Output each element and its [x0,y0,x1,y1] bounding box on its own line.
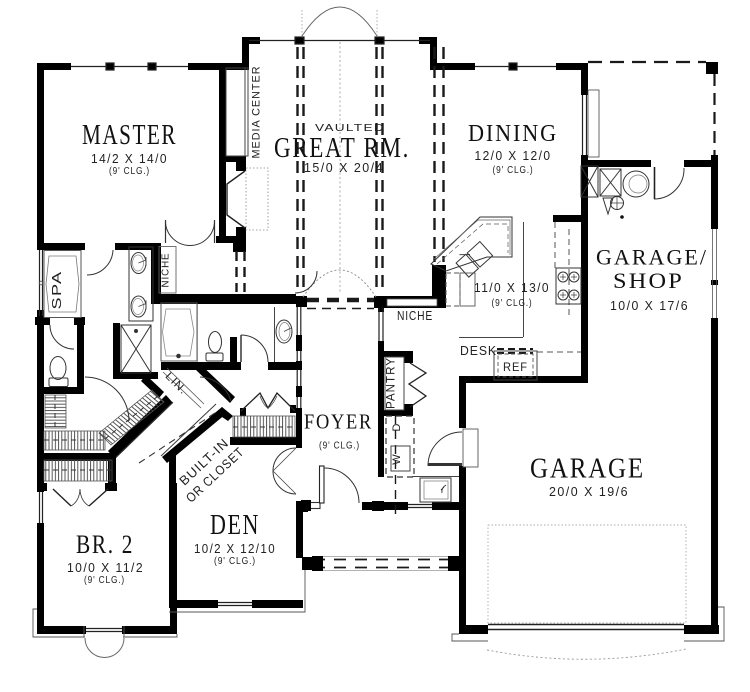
svg-text:NICHE: NICHE [160,253,172,288]
svg-text:11/0 X 13/0: 11/0 X 13/0 [474,281,550,295]
svg-text:10/0 X 11/2: 10/0 X 11/2 [67,561,144,575]
svg-text:REF: REF [503,360,528,374]
svg-text:W: W [391,453,403,464]
svg-text:GREAT RM.: GREAT RM. [274,133,410,164]
svg-text:SPA: SPA [49,271,64,310]
svg-text:(9' CLG.): (9' CLG.) [492,298,533,309]
svg-text:10/0 X 17/6: 10/0 X 17/6 [610,299,689,313]
svg-text:10/2 X 12/10: 10/2 X 12/10 [194,542,276,556]
svg-text:GARAGE/: GARAGE/ [596,245,708,270]
svg-text:FOYER: FOYER [304,410,373,434]
svg-text:DINING: DINING [468,121,558,147]
svg-text:(9' CLG.): (9' CLG.) [109,166,150,177]
svg-text:12/0 X 12/0: 12/0 X 12/0 [475,149,552,163]
svg-text:(9' CLG.): (9' CLG.) [493,165,534,176]
svg-text:PANTRY: PANTRY [386,357,398,409]
svg-text:14/2 X 14/0: 14/2 X 14/0 [91,152,168,166]
svg-text:20/0 X 19/6: 20/0 X 19/6 [549,485,629,499]
svg-text:DEN: DEN [210,510,260,541]
svg-text:BR. 2: BR. 2 [76,530,134,559]
svg-text:DESK: DESK [460,343,497,358]
svg-text:(9' CLG.): (9' CLG.) [84,575,125,586]
svg-text:GARAGE: GARAGE [530,454,645,485]
svg-text:MEDIA CENTER: MEDIA CENTER [251,66,263,159]
svg-text:MASTER: MASTER [82,120,177,151]
svg-text:(9' CLG.): (9' CLG.) [214,556,256,567]
svg-text:NICHE: NICHE [397,308,433,323]
svg-text:15/0 X 20/4: 15/0 X 20/4 [304,161,384,175]
svg-text:D: D [391,423,403,432]
svg-text:SHOP: SHOP [613,268,684,293]
svg-text:(9' CLG.): (9' CLG.) [319,441,360,452]
